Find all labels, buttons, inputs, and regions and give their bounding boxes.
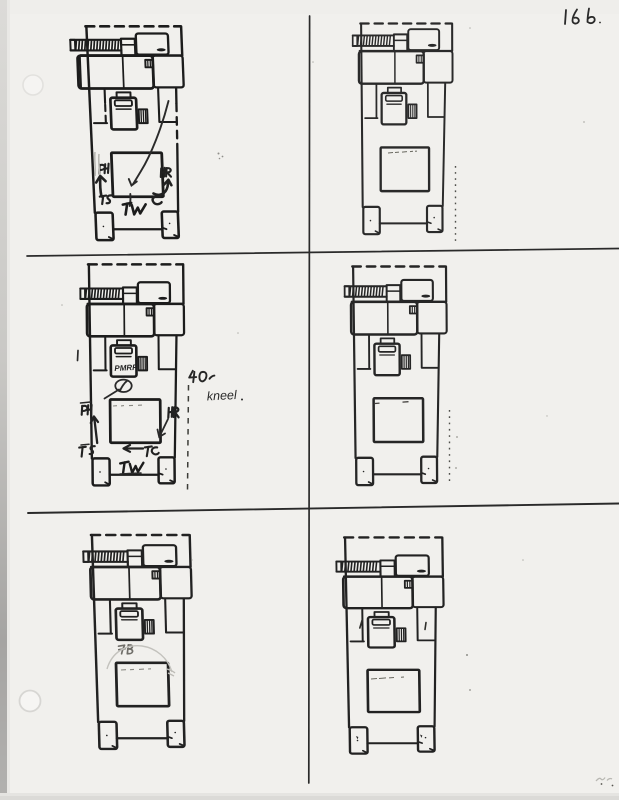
svg-text:PMRR: PMRR (114, 363, 138, 373)
svg-text:kneel: kneel (206, 388, 238, 404)
